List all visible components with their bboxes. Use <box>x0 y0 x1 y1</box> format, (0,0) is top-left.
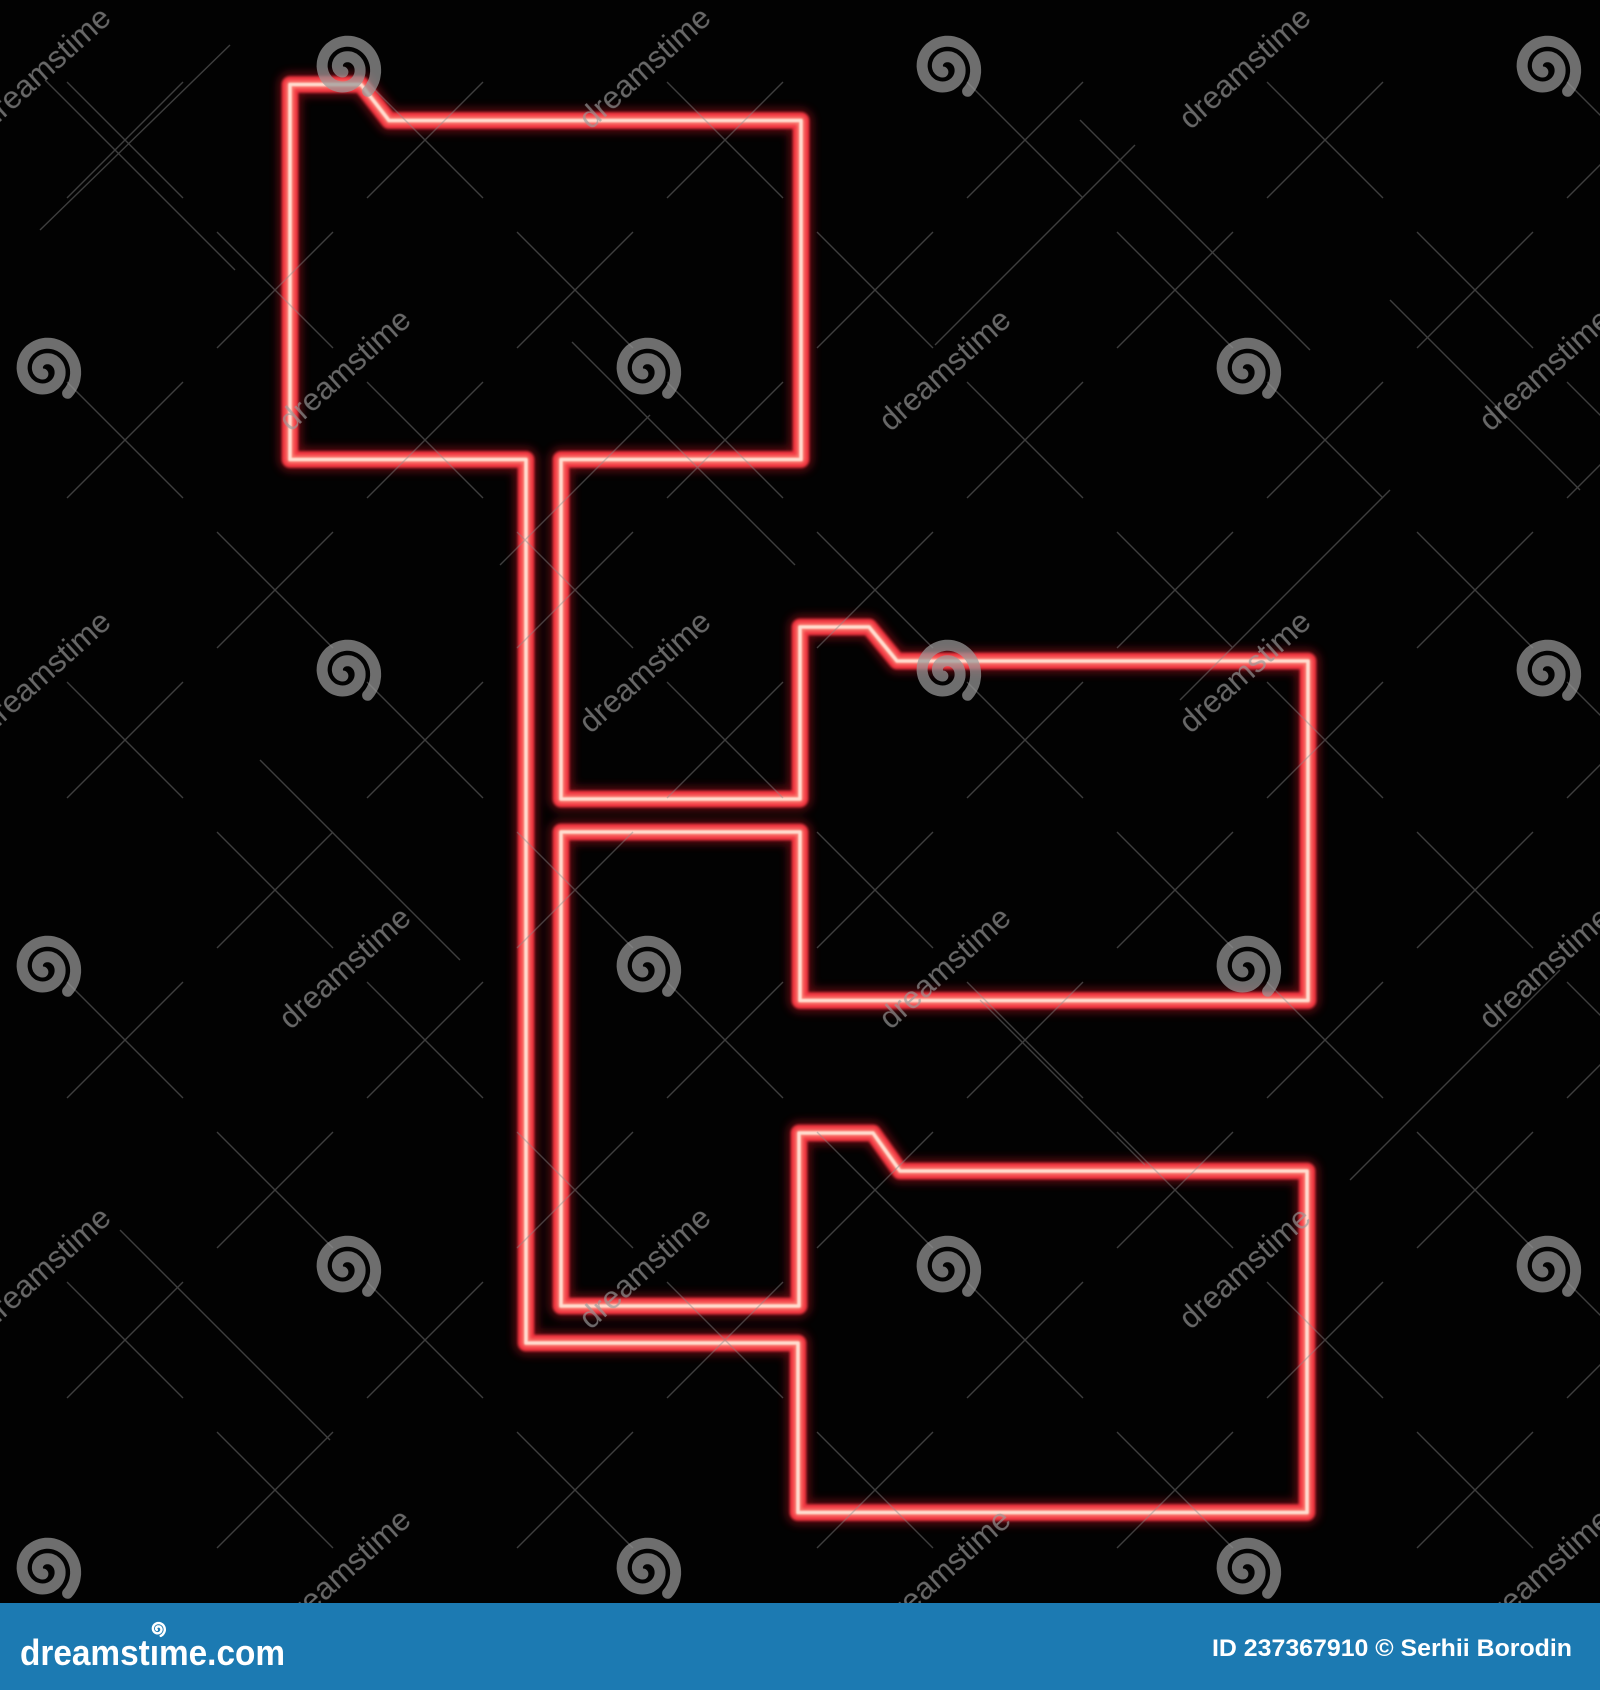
svg-text:ID 237367910 © Serhii Borodin: ID 237367910 © Serhii Borodin <box>1212 1635 1572 1662</box>
svg-text:dreamstıme.com: dreamstıme.com <box>20 1632 285 1673</box>
